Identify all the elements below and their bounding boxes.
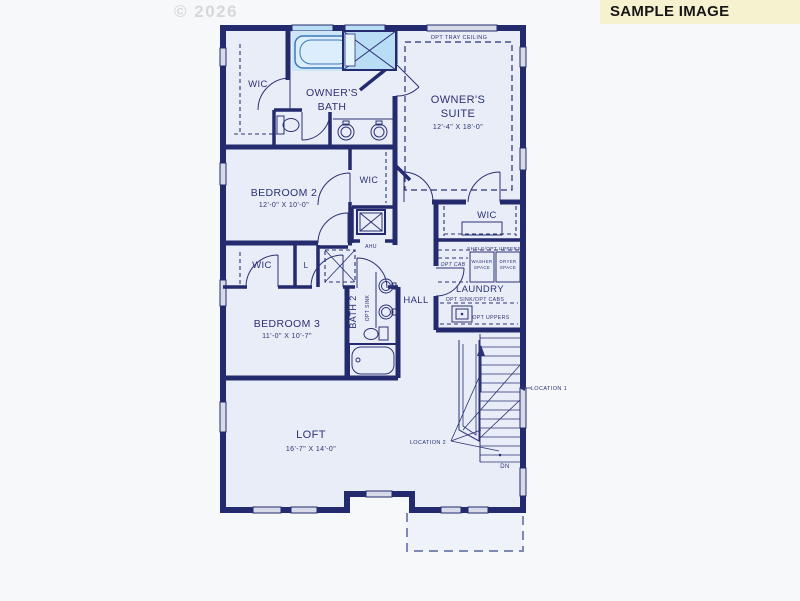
floor-plan-drawing: WIC OWNER'S BATH OPT TRAY CEILING OWNER'… bbox=[0, 0, 800, 601]
wic-right-label: WIC bbox=[477, 210, 497, 221]
stairs-dn-label: DN bbox=[500, 464, 509, 470]
laundry-shelf-label: SHELF/OPT UPPERS bbox=[467, 246, 521, 252]
loft-label: LOFT bbox=[296, 429, 326, 441]
hall-label: HALL bbox=[403, 295, 428, 306]
optional-area-dashed bbox=[407, 513, 523, 551]
loft-dims: 16'-7" X 14'-0" bbox=[286, 446, 336, 453]
laundry-label: LAUNDRY bbox=[456, 284, 504, 295]
owners-suite-label-2: SUITE bbox=[441, 108, 475, 120]
linen-label: L bbox=[304, 261, 309, 270]
owners-bath-label-2: BATH bbox=[318, 101, 347, 113]
bedroom2-label: BEDROOM 2 bbox=[251, 187, 318, 199]
wic-mid-label: WIC bbox=[360, 175, 379, 185]
owners-suite-dims: 12'-4" X 18'-0" bbox=[433, 124, 483, 131]
dryer-label-1: DRYER bbox=[500, 259, 517, 264]
opt-tray-ceiling-label: OPT TRAY CEILING bbox=[431, 35, 488, 41]
washer-label-1: WASHER bbox=[471, 259, 492, 264]
ahu-label: AHU bbox=[365, 244, 377, 250]
wic-owner-label: WIC bbox=[248, 79, 268, 90]
opt-sink-cabs-label: OPT SINK/OPT CABS bbox=[446, 297, 505, 303]
floor-plan-image: © 2026 SAMPLE IMAGE bbox=[0, 0, 800, 601]
location2-label: LOCATION 2 bbox=[410, 440, 446, 446]
bath2-label: BATH 2 bbox=[348, 295, 358, 328]
location1-label: LOCATION 1 bbox=[531, 386, 567, 392]
owners-bath-label-1: OWNER'S bbox=[306, 87, 358, 99]
bedroom3-dims: 11'-0" X 10'-7" bbox=[262, 333, 312, 340]
opt-cab-label: OPT CAB bbox=[441, 262, 466, 268]
owners-suite-label-1: OWNER'S bbox=[431, 94, 485, 106]
washer-label-2: SPACE bbox=[474, 265, 490, 270]
wic-bed3-label: WIC bbox=[252, 260, 272, 271]
bath2-opt-sink-label: OPT SINK bbox=[365, 295, 371, 322]
owners-shower bbox=[343, 31, 396, 70]
opt-uppers-label: OPT UPPERS bbox=[472, 315, 509, 321]
bedroom2-dims: 12'-0" X 10'-0" bbox=[259, 202, 309, 209]
bedroom3-label: BEDROOM 3 bbox=[254, 318, 321, 330]
dryer-label-2: SPACE bbox=[500, 265, 516, 270]
